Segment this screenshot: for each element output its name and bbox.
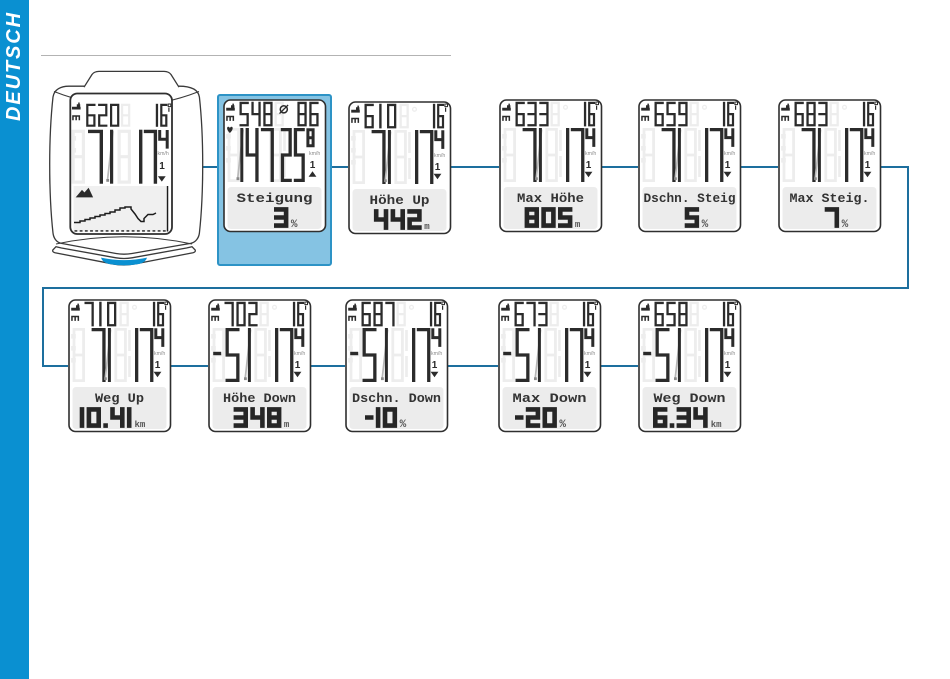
svg-text:km/h: km/h xyxy=(584,351,595,357)
svg-text:km/h: km/h xyxy=(431,351,442,357)
svg-text:1: 1 xyxy=(434,161,440,172)
svg-text:Dschn. Steig: Dschn. Steig xyxy=(644,191,736,206)
svg-text:1: 1 xyxy=(865,160,871,171)
svg-text:1: 1 xyxy=(432,360,438,371)
svg-text:Max Höhe: Max Höhe xyxy=(517,191,584,206)
svg-text:km/h: km/h xyxy=(724,151,735,157)
svg-text:1: 1 xyxy=(294,360,300,371)
svg-text:Höhe Down: Höhe Down xyxy=(223,391,296,406)
svg-text:Weg Down: Weg Down xyxy=(654,391,726,406)
svg-text:km/h: km/h xyxy=(585,151,596,157)
svg-text:1: 1 xyxy=(585,160,591,171)
svg-text:1: 1 xyxy=(310,160,316,171)
svg-text:1: 1 xyxy=(159,161,165,172)
svg-text:Höhe Up: Höhe Up xyxy=(369,193,429,208)
svg-text:km: km xyxy=(135,420,146,430)
svg-text:km/h: km/h xyxy=(724,351,735,357)
svg-text:m: m xyxy=(283,420,289,430)
svg-text:1: 1 xyxy=(725,160,731,171)
svg-text:Dschn. Down: Dschn. Down xyxy=(352,391,441,406)
svg-text:%: % xyxy=(702,219,709,231)
svg-text:%: % xyxy=(842,219,849,231)
svg-text:Weg Up: Weg Up xyxy=(95,391,144,406)
svg-text:%: % xyxy=(291,219,298,231)
svg-text:1: 1 xyxy=(725,360,731,371)
svg-text:km/h: km/h xyxy=(158,151,169,157)
svg-text:1: 1 xyxy=(585,360,591,371)
svg-text:m: m xyxy=(424,222,430,232)
svg-text:%: % xyxy=(559,419,566,431)
svg-text:km/h: km/h xyxy=(434,152,445,158)
svg-text:km: km xyxy=(711,420,722,430)
svg-text:Steigung: Steigung xyxy=(237,191,313,206)
svg-text:km/h: km/h xyxy=(864,151,875,157)
svg-text:km/h: km/h xyxy=(309,151,320,157)
svg-text:Max Down: Max Down xyxy=(513,391,587,406)
svg-text:1: 1 xyxy=(155,360,161,371)
svg-text:m: m xyxy=(574,220,580,230)
svg-text:%: % xyxy=(400,419,407,431)
svg-text:km/h: km/h xyxy=(154,351,165,357)
svg-text:km/h: km/h xyxy=(294,351,305,357)
svg-text:Max Steig.: Max Steig. xyxy=(790,191,870,206)
